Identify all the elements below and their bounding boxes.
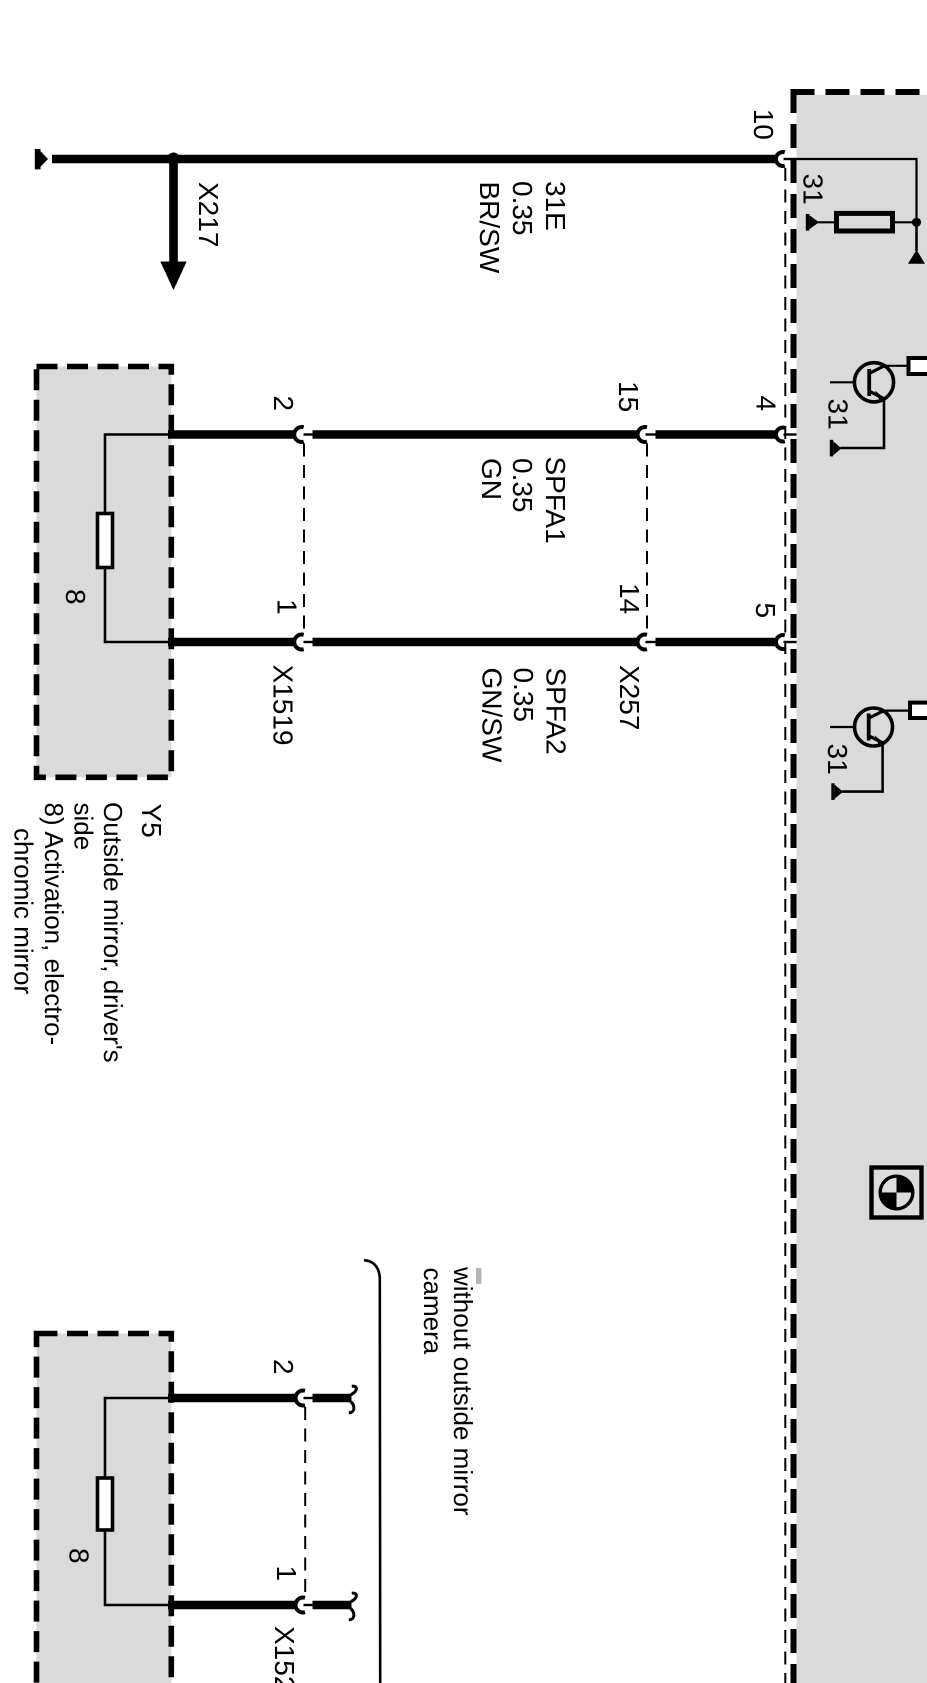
svg-text:0.35: 0.35 [507,181,538,236]
svg-text:31: 31 [822,744,853,775]
svg-text:31E: 31E [540,181,571,231]
svg-text:2: 2 [268,396,299,412]
svg-text:14: 14 [614,583,645,614]
svg-text:4: 4 [751,396,782,412]
svg-text:8: 8 [60,589,91,605]
svg-text:X217: X217 [193,182,224,247]
svg-text:0.35: 0.35 [508,668,539,723]
svg-text:31: 31 [798,174,829,205]
svg-text:1: 1 [271,1566,302,1582]
svg-text:GN/SW: GN/SW [477,668,508,763]
svg-text:0.35: 0.35 [507,458,538,513]
svg-text:without outside mirror: without outside mirror [448,1266,478,1516]
svg-text:10: 10 [748,109,779,140]
svg-text:chromic mirror: chromic mirror [9,828,39,994]
svg-text:8) Activation, electro-: 8) Activation, electro- [39,803,69,1046]
svg-text:5: 5 [750,603,781,619]
svg-text:X1520: X1520 [269,1626,300,1683]
svg-text:GN: GN [476,458,507,500]
svg-text:8: 8 [64,1548,95,1564]
svg-text:SPFA2: SPFA2 [541,668,572,755]
svg-text:X1519: X1519 [268,665,299,746]
svg-text:X257: X257 [614,665,645,730]
svg-text:1: 1 [272,599,303,615]
svg-text:BR/SW: BR/SW [474,182,505,274]
svg-text:31: 31 [823,399,854,430]
svg-text:side: side [69,803,99,851]
svg-text:camera: camera [418,1268,448,1355]
svg-text:Outside mirror, driver's: Outside mirror, driver's [98,802,128,1063]
svg-text:2: 2 [268,1359,299,1375]
svg-text:15: 15 [613,381,644,412]
svg-text:SPFA1: SPFA1 [540,457,571,544]
svg-text:Y5: Y5 [136,804,167,838]
